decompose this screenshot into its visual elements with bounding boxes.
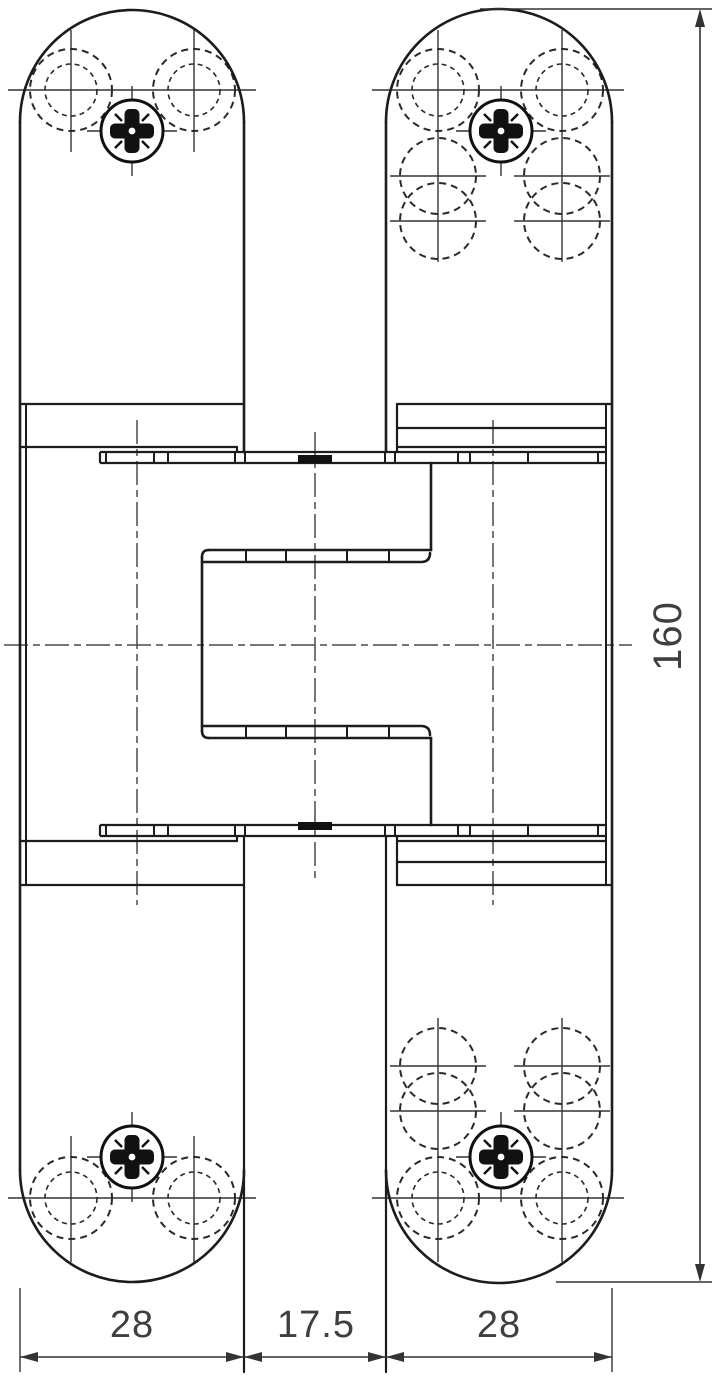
hinge-drawing xyxy=(0,0,720,1385)
dim-label-right-width: 28 xyxy=(459,1306,539,1346)
dim-label-gap: 17.5 xyxy=(260,1306,372,1346)
dim-label-left-width: 28 xyxy=(92,1306,172,1346)
phillips-screw-icon xyxy=(470,1126,532,1188)
pivot-pin-top xyxy=(298,455,332,463)
flange-strips xyxy=(100,452,606,836)
technical-drawing-canvas: 160 28 17.5 28 xyxy=(0,0,720,1385)
screws xyxy=(101,100,532,1188)
dim-label-height: 160 xyxy=(648,586,688,686)
flange-ticks xyxy=(106,452,598,836)
phillips-screw-icon xyxy=(101,100,163,162)
hinge-knuckle xyxy=(202,455,431,830)
phillips-screw-icon xyxy=(470,100,532,162)
drill-hole-markings xyxy=(30,49,603,1239)
knuckle-ticks xyxy=(246,550,389,738)
centerlines xyxy=(4,420,632,905)
pivot-pin-bottom xyxy=(298,822,332,830)
hole-crosshairs xyxy=(8,30,624,1262)
phillips-screw-icon xyxy=(101,1126,163,1188)
